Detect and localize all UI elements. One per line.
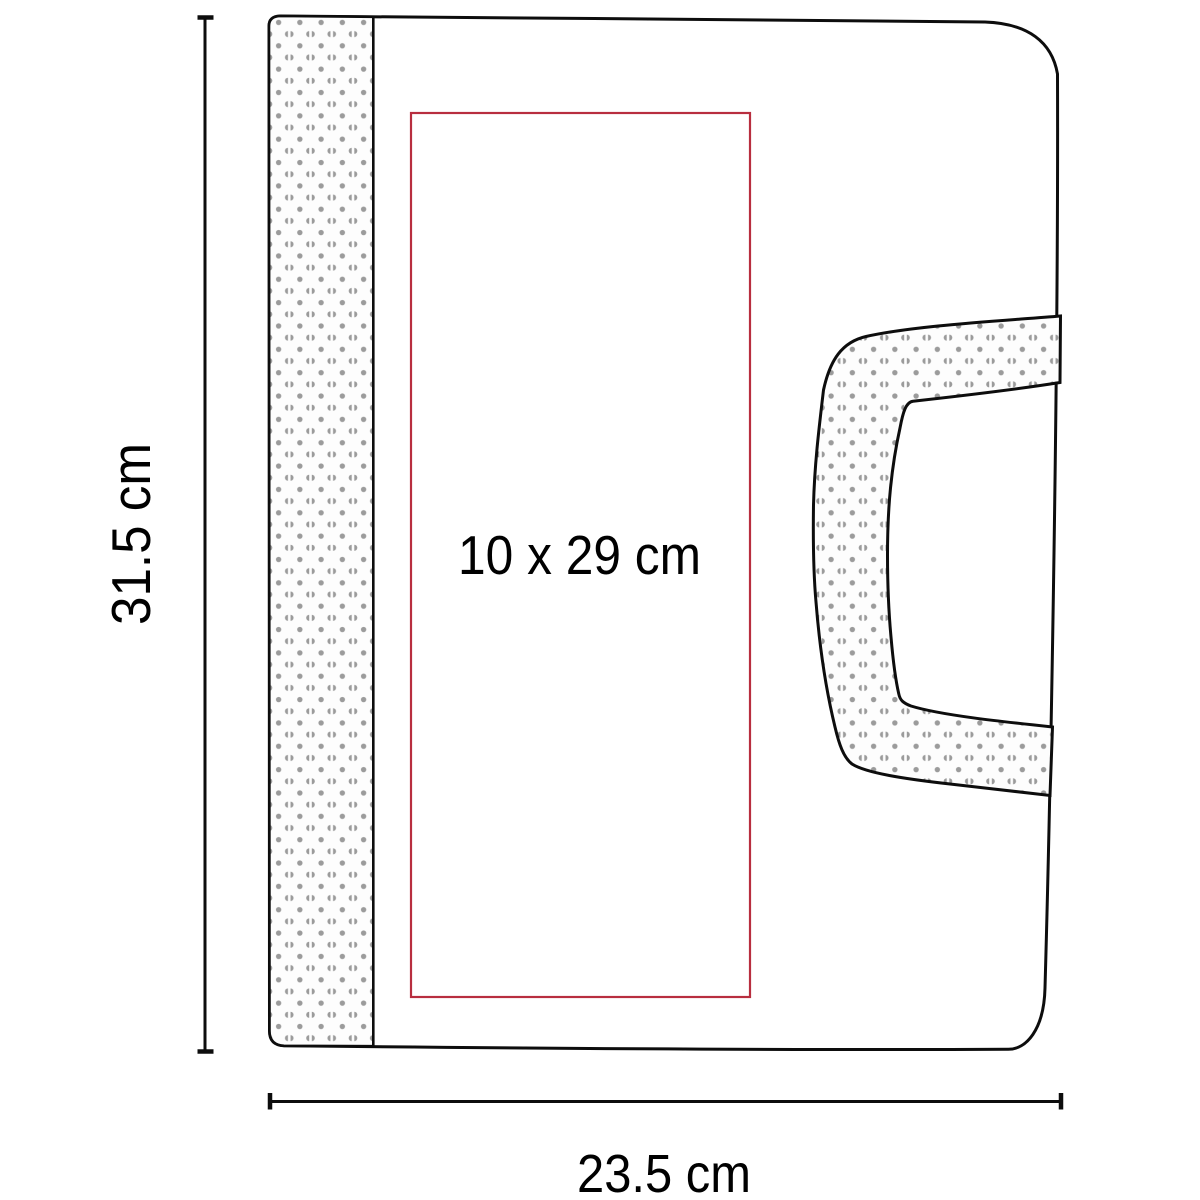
- svg-text:31.5 cm: 31.5 cm: [100, 443, 162, 625]
- svg-text:10 x 29 cm: 10 x 29 cm: [458, 524, 701, 586]
- svg-text:23.5 cm: 23.5 cm: [577, 1144, 751, 1200]
